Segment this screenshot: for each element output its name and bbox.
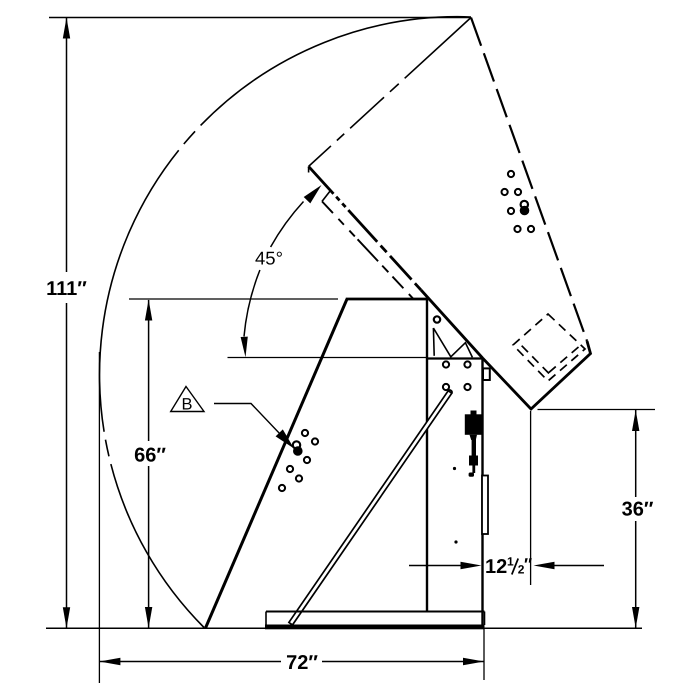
svg-text:36″: 36″	[622, 499, 654, 521]
svg-text:″: ″	[524, 555, 532, 574]
svg-text:111″: 111″	[46, 278, 87, 300]
svg-text:45°: 45°	[255, 248, 283, 269]
svg-text:72″: 72″	[286, 652, 318, 674]
svg-text:B: B	[182, 396, 193, 414]
svg-text:66″: 66″	[134, 445, 166, 467]
svg-text:12: 12	[485, 556, 507, 578]
svg-text:1: 1	[507, 555, 514, 569]
